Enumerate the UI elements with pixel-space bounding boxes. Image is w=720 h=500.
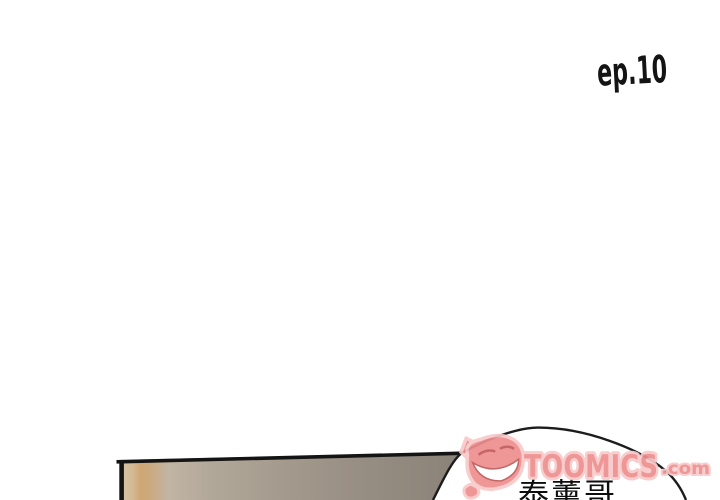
floor-panel (117, 452, 467, 500)
watermark-tld: .com (661, 459, 710, 479)
episode-label: ep.10 (596, 47, 668, 95)
comic-art: ep.10 泰薰哥 TOOMICS .com (0, 0, 720, 500)
comic-page: ep.10 泰薰哥 TOOMICS .com (0, 0, 720, 500)
episode-label-group: ep.10 (596, 47, 668, 95)
watermark-brand: TOOMICS (524, 449, 658, 485)
